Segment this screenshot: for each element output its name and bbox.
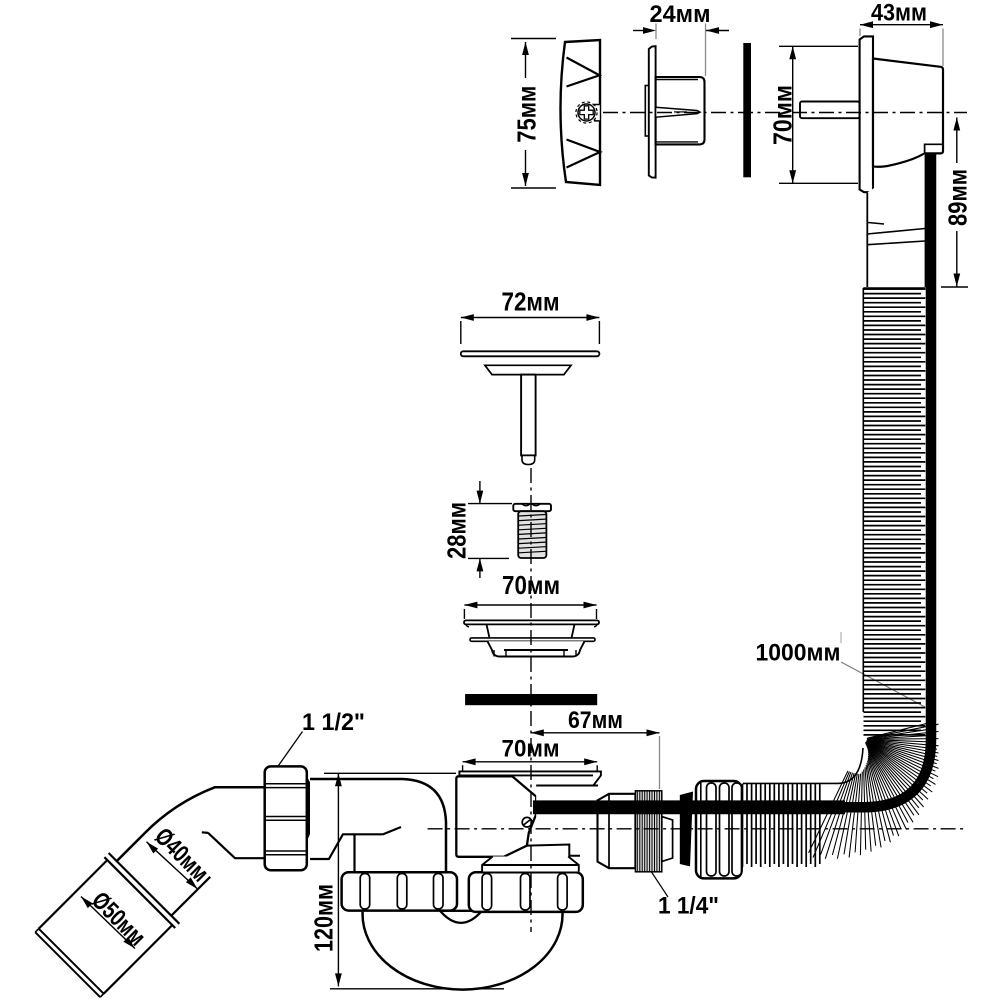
svg-text:43мм: 43мм [871, 0, 927, 27]
svg-text:120мм: 120мм [308, 884, 338, 952]
svg-text:75мм: 75мм [511, 86, 541, 143]
svg-text:28мм: 28мм [442, 502, 472, 559]
svg-text:89мм: 89мм [943, 169, 973, 226]
svg-text:1 1/2": 1 1/2" [302, 709, 365, 736]
svg-text:72мм: 72мм [502, 287, 560, 317]
svg-text:1000мм: 1000мм [756, 640, 841, 667]
svg-text:24мм: 24мм [650, 1, 711, 28]
svg-text:67мм: 67мм [568, 707, 623, 734]
svg-text:70мм: 70мм [768, 85, 798, 145]
